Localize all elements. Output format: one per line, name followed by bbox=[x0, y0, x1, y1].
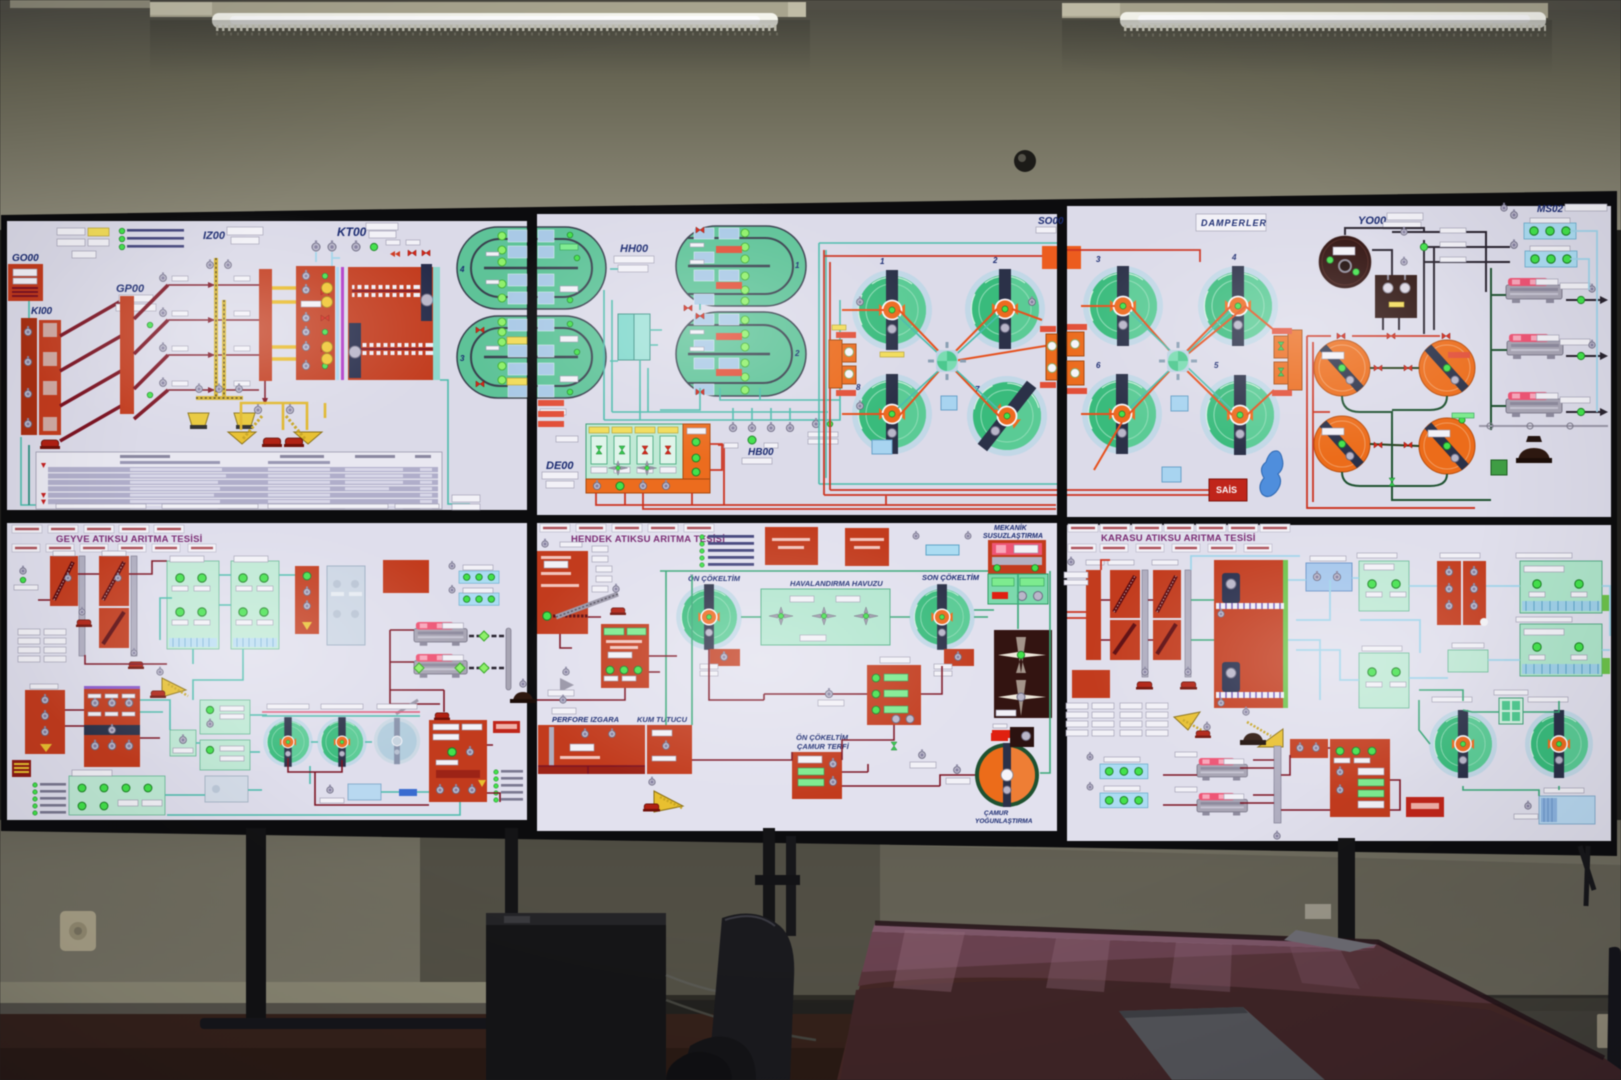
svg-text:2: 2 bbox=[992, 256, 998, 265]
svg-text:MEKANİK: MEKANİK bbox=[994, 524, 1028, 532]
svg-text:SUSUZLAŞTIRMA: SUSUZLAŞTIRMA bbox=[983, 533, 1043, 540]
svg-text:3: 3 bbox=[460, 354, 465, 363]
svg-text:4: 4 bbox=[459, 265, 465, 274]
svg-text:SAİS: SAİS bbox=[1216, 485, 1237, 495]
svg-text:ÇAMUR: ÇAMUR bbox=[984, 810, 1008, 817]
svg-text:GO00: GO00 bbox=[12, 253, 39, 264]
svg-text:MS02: MS02 bbox=[1537, 204, 1564, 215]
svg-text:SO00: SO00 bbox=[1038, 216, 1064, 227]
svg-text:DE00: DE00 bbox=[546, 460, 574, 472]
svg-text:YOĞUNLAŞTIRMA: YOĞUNLAŞTIRMA bbox=[975, 816, 1033, 825]
